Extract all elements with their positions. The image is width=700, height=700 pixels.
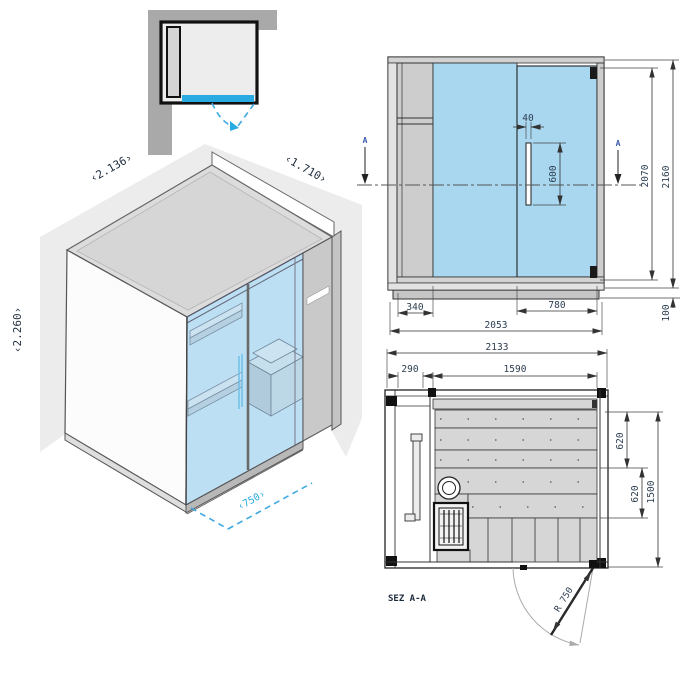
svg-text:620: 620 xyxy=(630,485,641,502)
fixed-glass-panel xyxy=(433,63,517,277)
left-edge-strip xyxy=(388,63,397,290)
tech-compartment xyxy=(167,27,180,97)
svg-text:340: 340 xyxy=(406,302,423,313)
front-corner-edge xyxy=(186,317,187,505)
corner-block-bottom-right xyxy=(597,558,606,568)
hinge-top xyxy=(590,67,597,79)
post-top-inner xyxy=(428,388,436,397)
corner-block-top-right xyxy=(597,388,606,398)
front-bench-slats xyxy=(468,518,597,562)
heater-platform xyxy=(437,550,470,562)
svg-text:1590: 1590 xyxy=(504,364,527,375)
svg-text:600: 600 xyxy=(548,165,559,182)
sauna-technical-drawing: ‹2.136› ‹1.710› ‹2.260› ‹750› 40 xyxy=(0,0,700,700)
front-elevation: 40 600 A A 2070 2160 xyxy=(357,57,680,335)
plan-section: 2133 290 1590 xyxy=(385,342,663,645)
svg-text:2053: 2053 xyxy=(485,320,508,331)
dim-interior-width: 1590 xyxy=(433,364,597,388)
section-title: SEZ A-A xyxy=(388,594,427,604)
dim-glass-height: 2070 xyxy=(600,68,658,280)
door-strip xyxy=(182,95,254,102)
top-rail xyxy=(388,57,604,63)
door-dim-extension xyxy=(191,508,228,529)
dim-tech-compartment: 290 xyxy=(388,364,431,388)
heater-plan xyxy=(434,503,468,550)
svg-text:780: 780 xyxy=(548,300,565,311)
drawing-canvas: ‹2.136› ‹1.710› ‹2.260› ‹750› 40 xyxy=(0,0,700,700)
base-plinth xyxy=(393,290,599,299)
isometric-view: ‹2.136› ‹1.710› ‹2.260› ‹750› xyxy=(11,144,362,529)
svg-text:100: 100 xyxy=(661,304,672,321)
iso-height-label: ‹2.260› xyxy=(11,307,24,353)
iso-width-label: ‹2.136› xyxy=(88,151,135,185)
front-corner-panel xyxy=(303,237,332,441)
corner-block-top-left xyxy=(386,396,397,406)
hinge-bottom xyxy=(590,266,597,278)
bottom-rail xyxy=(397,277,604,283)
svg-text:2133: 2133 xyxy=(486,342,509,353)
dim-bench-depth-upper: 620 xyxy=(600,412,663,468)
corner-installation-icon xyxy=(148,10,277,155)
door-swing-arrow-icon xyxy=(230,121,239,131)
right-edge-panel xyxy=(597,63,604,277)
left-side-panel xyxy=(397,63,433,277)
iso-door-width-label: ‹750› xyxy=(236,489,268,513)
bottom-band xyxy=(388,283,604,290)
svg-text:A: A xyxy=(363,136,368,145)
section-marker-right: A xyxy=(615,139,622,184)
svg-text:2070: 2070 xyxy=(640,164,651,187)
door-handle xyxy=(526,143,531,205)
door-swing: R 750 xyxy=(513,568,593,645)
vent-circle xyxy=(438,477,460,499)
dim-base-height: 100 xyxy=(600,278,680,322)
svg-text:620: 620 xyxy=(615,432,626,449)
door-leaf-dashed-icon xyxy=(238,104,254,126)
corner-block-bottom-left xyxy=(386,556,397,566)
svg-text:2160: 2160 xyxy=(661,165,672,188)
svg-text:40: 40 xyxy=(522,113,534,124)
door-stop-block xyxy=(520,565,527,570)
dim-total-width: 2133 xyxy=(387,342,607,388)
svg-text:290: 290 xyxy=(401,364,418,375)
svg-text:A: A xyxy=(616,139,621,148)
door-hinge-block xyxy=(589,560,597,568)
right-side-panel xyxy=(332,231,341,430)
section-marker-left: A xyxy=(362,136,369,184)
svg-text:1500: 1500 xyxy=(646,480,657,503)
